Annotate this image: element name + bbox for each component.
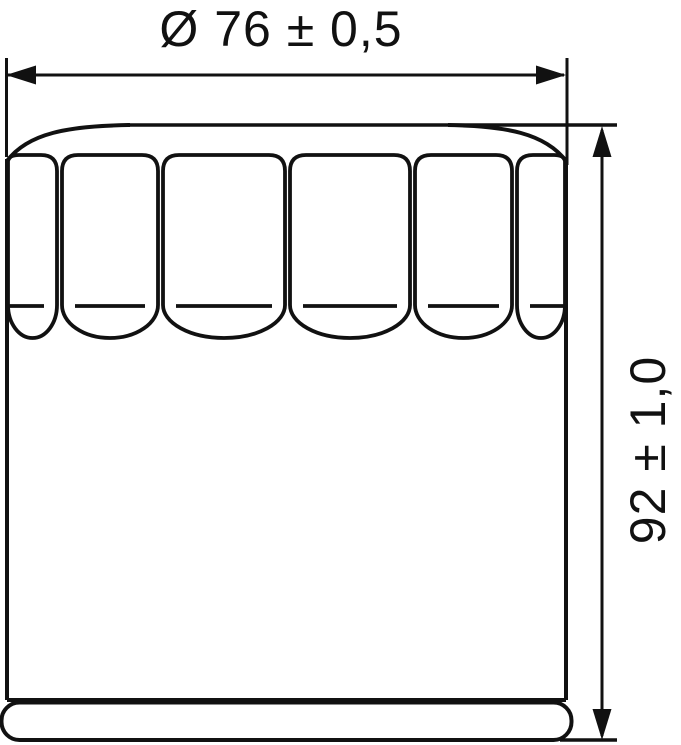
- arrowhead-down-icon: [593, 709, 612, 740]
- flute-4: [290, 155, 410, 338]
- flute-1: [8, 155, 57, 338]
- technical-drawing-canvas: Ø 76 ± 0,5 92 ± 1,0: [0, 0, 681, 745]
- filter-base-plate: [2, 703, 572, 741]
- oil-filter-drawing: [0, 0, 681, 745]
- arrowhead-left-icon: [6, 66, 36, 85]
- flute-5: [415, 155, 512, 338]
- filter-flutes: [8, 155, 565, 338]
- width-dimension: [6, 58, 567, 165]
- flute-3: [163, 155, 285, 338]
- arrowhead-right-icon: [536, 66, 566, 85]
- flute-6: [517, 155, 565, 338]
- arrowhead-up-icon: [593, 126, 612, 157]
- height-dimension-label: 92 ± 1,0: [621, 340, 675, 560]
- height-dimension: [128, 125, 617, 740]
- base-plate-outline: [2, 703, 572, 741]
- flute-2: [62, 155, 158, 338]
- diameter-dimension-label: Ø 76 ± 0,5: [0, 0, 562, 58]
